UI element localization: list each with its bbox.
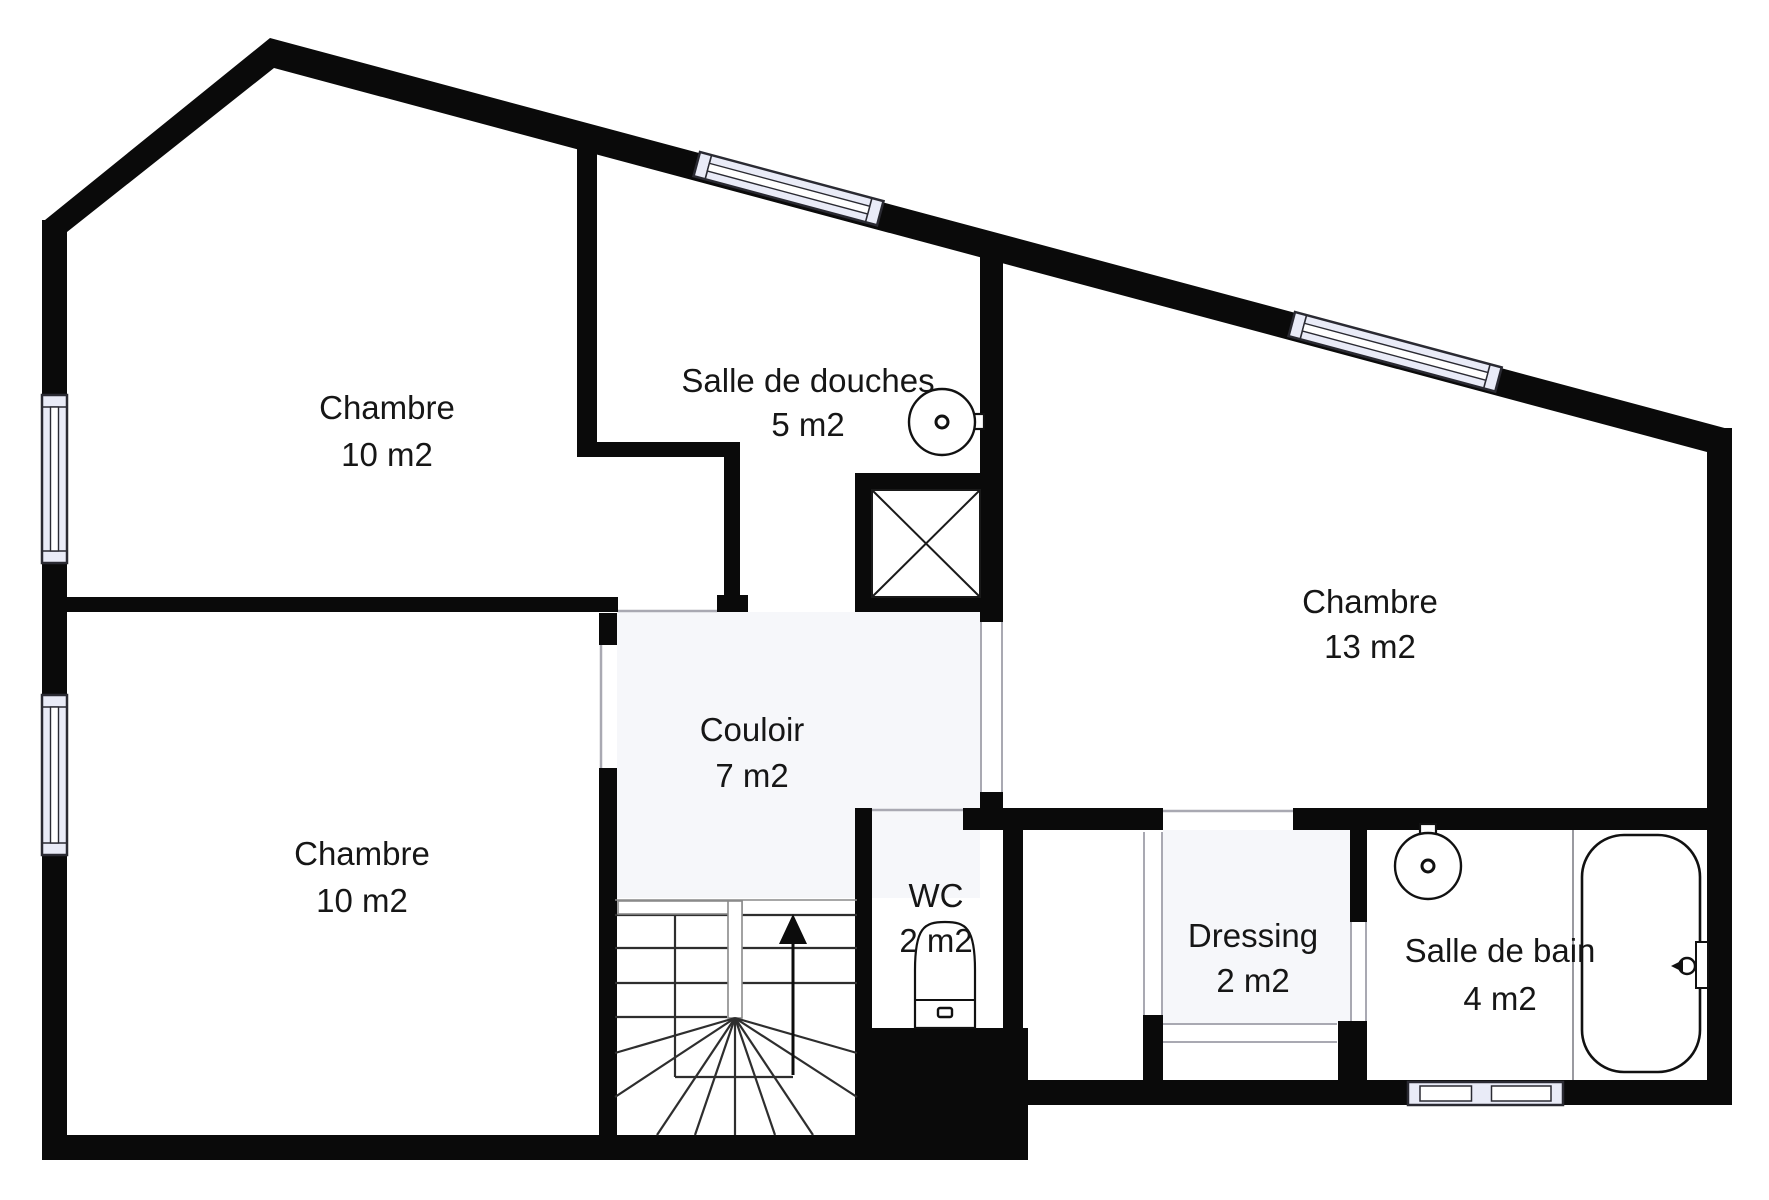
window-bottom-wall — [1408, 1082, 1563, 1105]
bottom-wall-right — [1028, 1080, 1732, 1105]
room-label-salle-de-bain: Salle de bain — [1405, 932, 1596, 969]
toilet-flush-button — [938, 1008, 952, 1017]
wall-chambre13-left — [980, 255, 1003, 622]
room-label-chambre-bas-gauche: Chambre — [294, 835, 430, 872]
window-left-wall — [42, 695, 67, 855]
door-jamb-block — [717, 595, 748, 612]
wall-jog-vertical — [724, 457, 740, 597]
dressing-left-lower — [1143, 1015, 1163, 1082]
dressing-right-block — [1338, 1021, 1367, 1082]
window-mullion — [51, 707, 59, 843]
stub-chambre-bas — [599, 613, 617, 645]
bathtub-body — [1582, 835, 1700, 1072]
stair-rail — [618, 901, 742, 914]
shaft-left-wall — [855, 473, 872, 612]
door-couloir-chambre13 — [980, 622, 1003, 792]
washbasin-drain — [936, 416, 948, 428]
stub-chambre13-door — [980, 792, 1003, 813]
room-label-chambre-droite: Chambre — [1302, 583, 1438, 620]
bottom-wall-left — [42, 1135, 857, 1160]
left-wall — [42, 220, 67, 1160]
room-area-chambre-haut-gauche: 10 m2 — [341, 436, 433, 473]
wc-right-wall — [1003, 827, 1023, 1082]
room-area-dressing: 2 m2 — [1216, 962, 1289, 999]
room-area-chambre-droite: 13 m2 — [1324, 628, 1416, 665]
room-area-chambre-bas-gauche: 10 m2 — [316, 882, 408, 919]
bathtub-icon — [1582, 835, 1708, 1072]
room-area-salle-de-douches: 5 m2 — [771, 406, 844, 443]
door-dressing-left — [1143, 832, 1163, 1015]
wall-stairs-left — [599, 768, 617, 1138]
mid-wall-left — [50, 597, 618, 612]
door-salle-de-bain — [1350, 922, 1367, 1021]
wall-douches-left — [577, 148, 597, 457]
room-label-wc: WC — [909, 877, 964, 914]
room-area-salle-de-bain: 4 m2 — [1463, 980, 1536, 1017]
room-area-couloir: 7 m2 — [715, 757, 788, 794]
room-label-dressing: Dressing — [1188, 917, 1318, 954]
tint-area — [855, 612, 980, 810]
room-area-wc: 2 m2 — [899, 922, 972, 959]
door-dressing-bottom — [1163, 1023, 1337, 1043]
window-mullion — [51, 407, 59, 551]
room-label-chambre-haut-gauche: Chambre — [319, 389, 455, 426]
dressing-right-upper — [1350, 830, 1367, 922]
floor-plan-drawing: Chambre10 m2Salle de douches5 m2Chambre1… — [0, 0, 1769, 1200]
window-mullion — [1420, 1086, 1472, 1101]
technical-shaft — [872, 490, 980, 597]
wall-jog-horizontal — [577, 442, 740, 457]
washbasin-drain — [1422, 860, 1434, 872]
window-left-wall — [42, 395, 67, 563]
bathtub-mixer-plate — [1696, 942, 1708, 988]
floor-plan-canvas: Chambre10 m2Salle de douches5 m2Chambre1… — [0, 0, 1769, 1200]
room-label-salle-de-douches: Salle de douches — [681, 362, 934, 399]
window-mullion — [1492, 1086, 1552, 1101]
stair-rail — [728, 901, 742, 1018]
south-wall-b — [1293, 808, 1732, 830]
room-label-couloir: Couloir — [700, 711, 805, 748]
wc-floor-block — [855, 1028, 1028, 1160]
wc-left-wall — [855, 808, 872, 1030]
right-wall — [1707, 428, 1732, 1105]
